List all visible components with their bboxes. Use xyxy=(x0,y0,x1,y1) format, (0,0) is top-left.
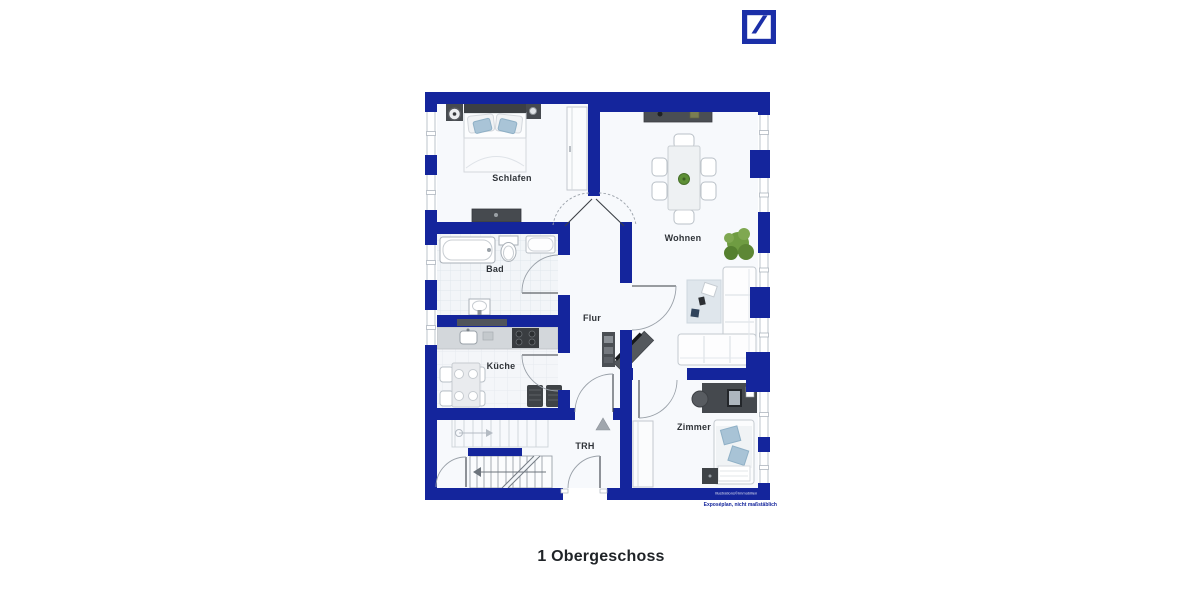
window-schlafen-1 xyxy=(425,112,437,155)
sink xyxy=(469,299,490,315)
window-zimmer-2 xyxy=(758,452,770,483)
watermark-text: Illustrations©Immobilien xyxy=(715,491,758,496)
disclaimer-text: Exposéplan, nicht maßstäblich xyxy=(704,502,777,508)
dresser xyxy=(472,209,521,222)
page-title: 1 Obergeschoss xyxy=(537,548,664,565)
nightstand-right xyxy=(526,104,541,119)
kitchen-sink xyxy=(460,331,477,344)
stove xyxy=(512,328,539,348)
nightstand-left xyxy=(446,104,463,121)
window-wohnen-2 xyxy=(758,178,770,212)
page: Schlafen Wohnen Bad Flur Küche TRH Zimme… xyxy=(0,0,1200,600)
shower-bench xyxy=(526,236,555,253)
wardrobe-schlafen xyxy=(567,107,587,190)
room-label-trh: TRH xyxy=(575,441,594,451)
desk-chair xyxy=(692,391,708,407)
kitchen-counter xyxy=(437,327,558,349)
room-label-zimmer: Zimmer xyxy=(677,422,711,432)
window-bad xyxy=(425,245,437,280)
window-schlafen-2 xyxy=(425,175,437,210)
double-bed xyxy=(464,104,526,172)
main-stair-flight xyxy=(470,456,552,488)
window-kueche xyxy=(425,310,437,345)
room-label-schlafen: Schlafen xyxy=(492,173,532,183)
room-label-wohnen: Wohnen xyxy=(665,233,702,243)
room-label-bad: Bad xyxy=(486,264,504,274)
window-wohnen-4 xyxy=(758,318,770,352)
kitchen-upper-cabinet xyxy=(457,319,507,326)
bathtub xyxy=(440,237,495,263)
floorplan-canvas: Schlafen Wohnen Bad Flur Küche TRH Zimme… xyxy=(0,0,1200,600)
window-wohnen-1 xyxy=(758,115,770,150)
flur-shelf xyxy=(602,332,615,367)
single-bed xyxy=(714,420,754,484)
wardrobe-zimmer xyxy=(633,421,653,487)
rug xyxy=(687,280,721,323)
nightstand-zimmer xyxy=(702,468,718,484)
appliance-1 xyxy=(527,385,543,407)
room-label-flur: Flur xyxy=(583,313,601,323)
window-wohnen-3 xyxy=(758,253,770,287)
deutsche-bank-logo xyxy=(742,10,776,44)
room-label-kueche: Küche xyxy=(487,361,516,371)
window-zimmer-1 xyxy=(758,392,770,437)
